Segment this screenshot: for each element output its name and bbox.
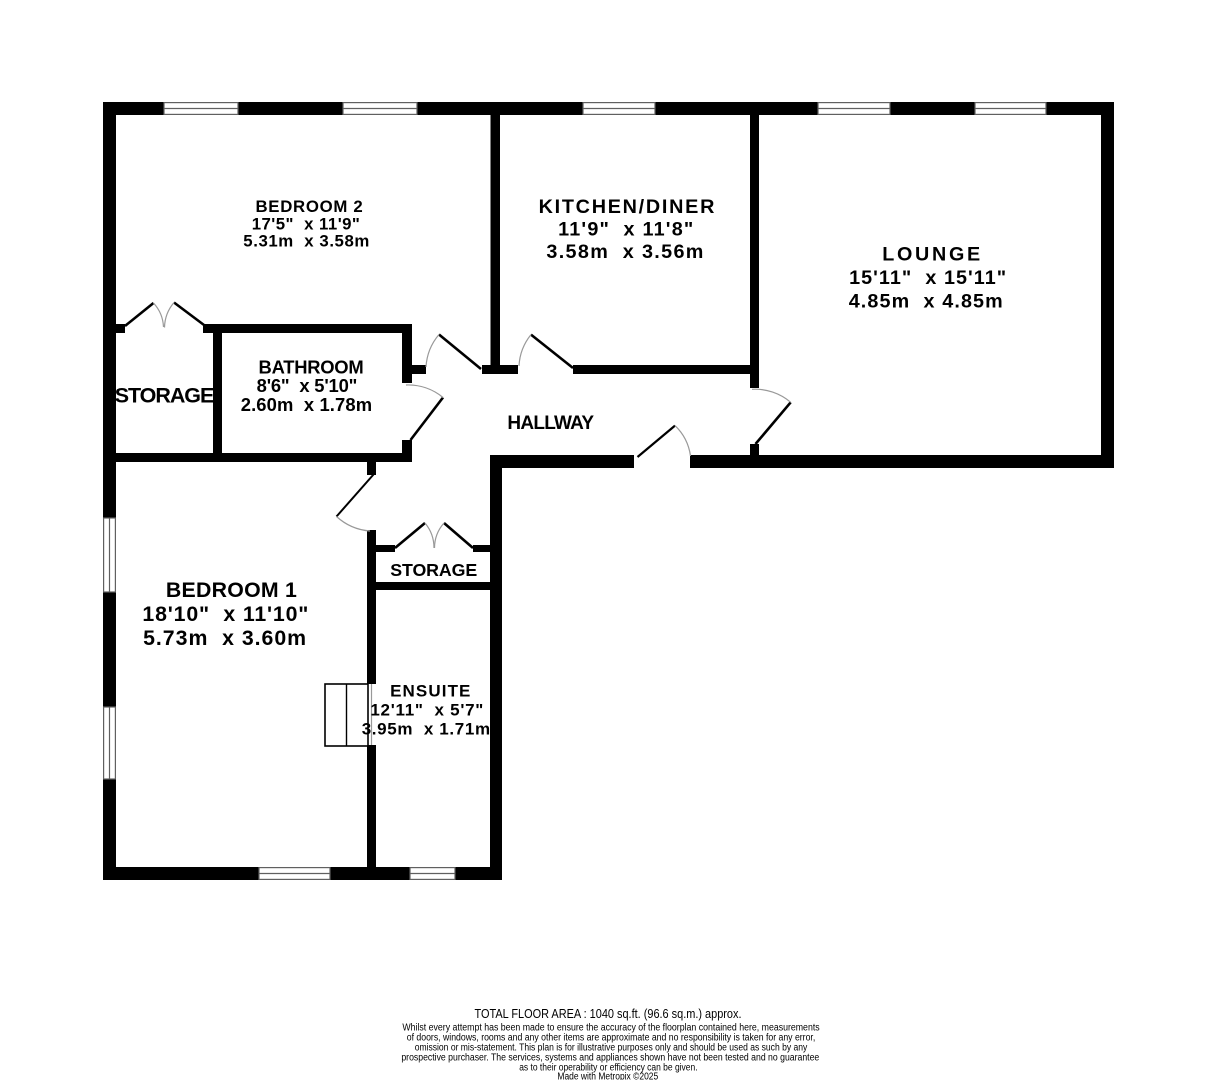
svg-text:12'11" x 5'7": 12'11" x 5'7": [370, 701, 483, 720]
svg-text:3.95m x 1.71m: 3.95m x 1.71m: [362, 719, 490, 738]
svg-text:TOTAL FLOOR AREA : 1040 sq.ft.: TOTAL FLOOR AREA : 1040 sq.ft. (96.6 sq.…: [475, 1006, 742, 1021]
svg-text:KITCHEN/DINER: KITCHEN/DINER: [539, 196, 715, 218]
svg-text:4.85m x 4.85m: 4.85m x 4.85m: [849, 290, 1003, 312]
svg-text:18'10" x 11'10": 18'10" x 11'10": [142, 602, 308, 626]
svg-text:3.58m x 3.56m: 3.58m x 3.56m: [546, 241, 703, 263]
svg-text:HALLWAY: HALLWAY: [507, 413, 594, 434]
svg-text:Made with Metropix ©2025: Made with Metropix ©2025: [557, 1072, 658, 1080]
svg-text:ENSUITE: ENSUITE: [390, 682, 470, 701]
svg-text:2.60m x 1.78m: 2.60m x 1.78m: [241, 394, 372, 415]
svg-text:STORAGE: STORAGE: [115, 383, 215, 407]
svg-text:15'11" x 15'11": 15'11" x 15'11": [849, 267, 1006, 289]
svg-text:LOUNGE: LOUNGE: [882, 243, 980, 265]
svg-text:5.73m x 3.60m: 5.73m x 3.60m: [143, 626, 306, 650]
svg-text:11'9" x 11'8": 11'9" x 11'8": [558, 218, 693, 240]
svg-text:BEDROOM 2: BEDROOM 2: [256, 197, 363, 216]
svg-text:BEDROOM 1: BEDROOM 1: [166, 578, 297, 602]
svg-text:5.31m x 3.58m: 5.31m x 3.58m: [243, 231, 369, 250]
svg-text:STORAGE: STORAGE: [390, 560, 477, 580]
